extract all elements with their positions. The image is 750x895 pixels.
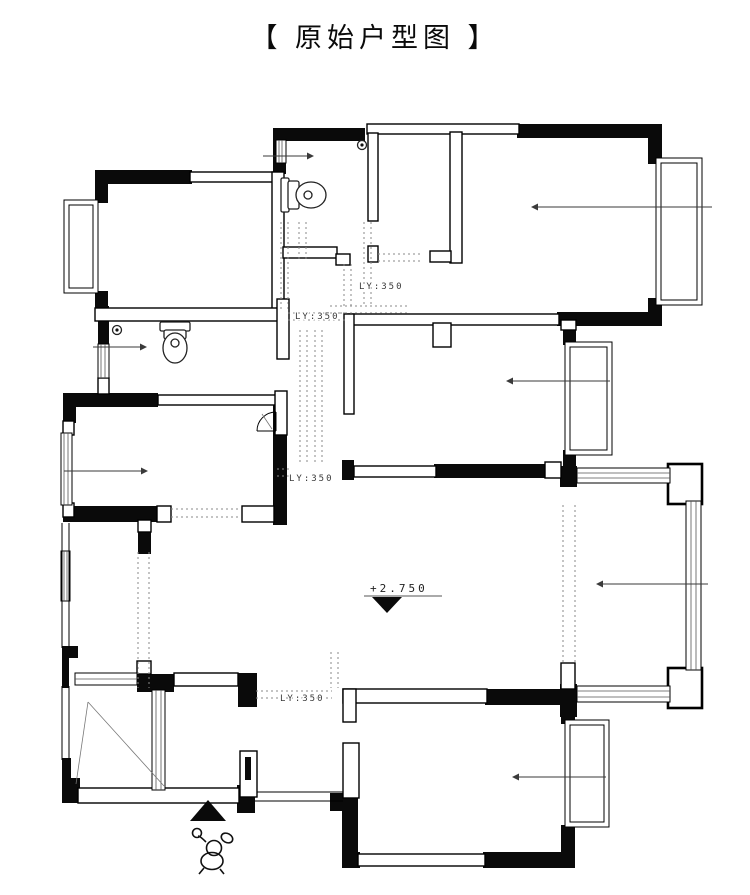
elevation-marker-icon: +2.750 (364, 582, 442, 613)
floor-drain-icon (113, 326, 122, 335)
windows (61, 140, 702, 827)
bay-window-middle-right (565, 342, 612, 455)
bay-window-top-left (64, 200, 98, 293)
thin-lines (62, 523, 343, 801)
direction-arrow-icon (263, 153, 314, 160)
floor-drain-icon (358, 141, 367, 150)
direction-arrow-icon (64, 468, 148, 475)
entry-door-icon (240, 751, 257, 797)
toilet-icon (160, 322, 190, 363)
beam-label: LY:350 (359, 282, 404, 292)
bay-window-bottom-right (565, 720, 609, 827)
elevation-label: +2.750 (370, 582, 428, 595)
floor-plan-svg: LY:350 LY:350 LY:350 LY:350 +2.750 (0, 0, 750, 895)
beam-label: LY:350 (280, 694, 325, 704)
beam-label: LY:350 (295, 312, 340, 322)
figure-mascot-icon (193, 829, 235, 875)
annotations: LY:350 LY:350 LY:350 LY:350 +2.750 (190, 282, 442, 874)
beam-label: LY:350 (289, 474, 334, 484)
light-walls (63, 124, 576, 866)
bay-window-top-right (656, 158, 702, 305)
dashed-beam-lines (138, 222, 575, 698)
toilet-icon (281, 178, 326, 212)
floor-plan-page: 【 原始户型图 】 (0, 0, 750, 895)
